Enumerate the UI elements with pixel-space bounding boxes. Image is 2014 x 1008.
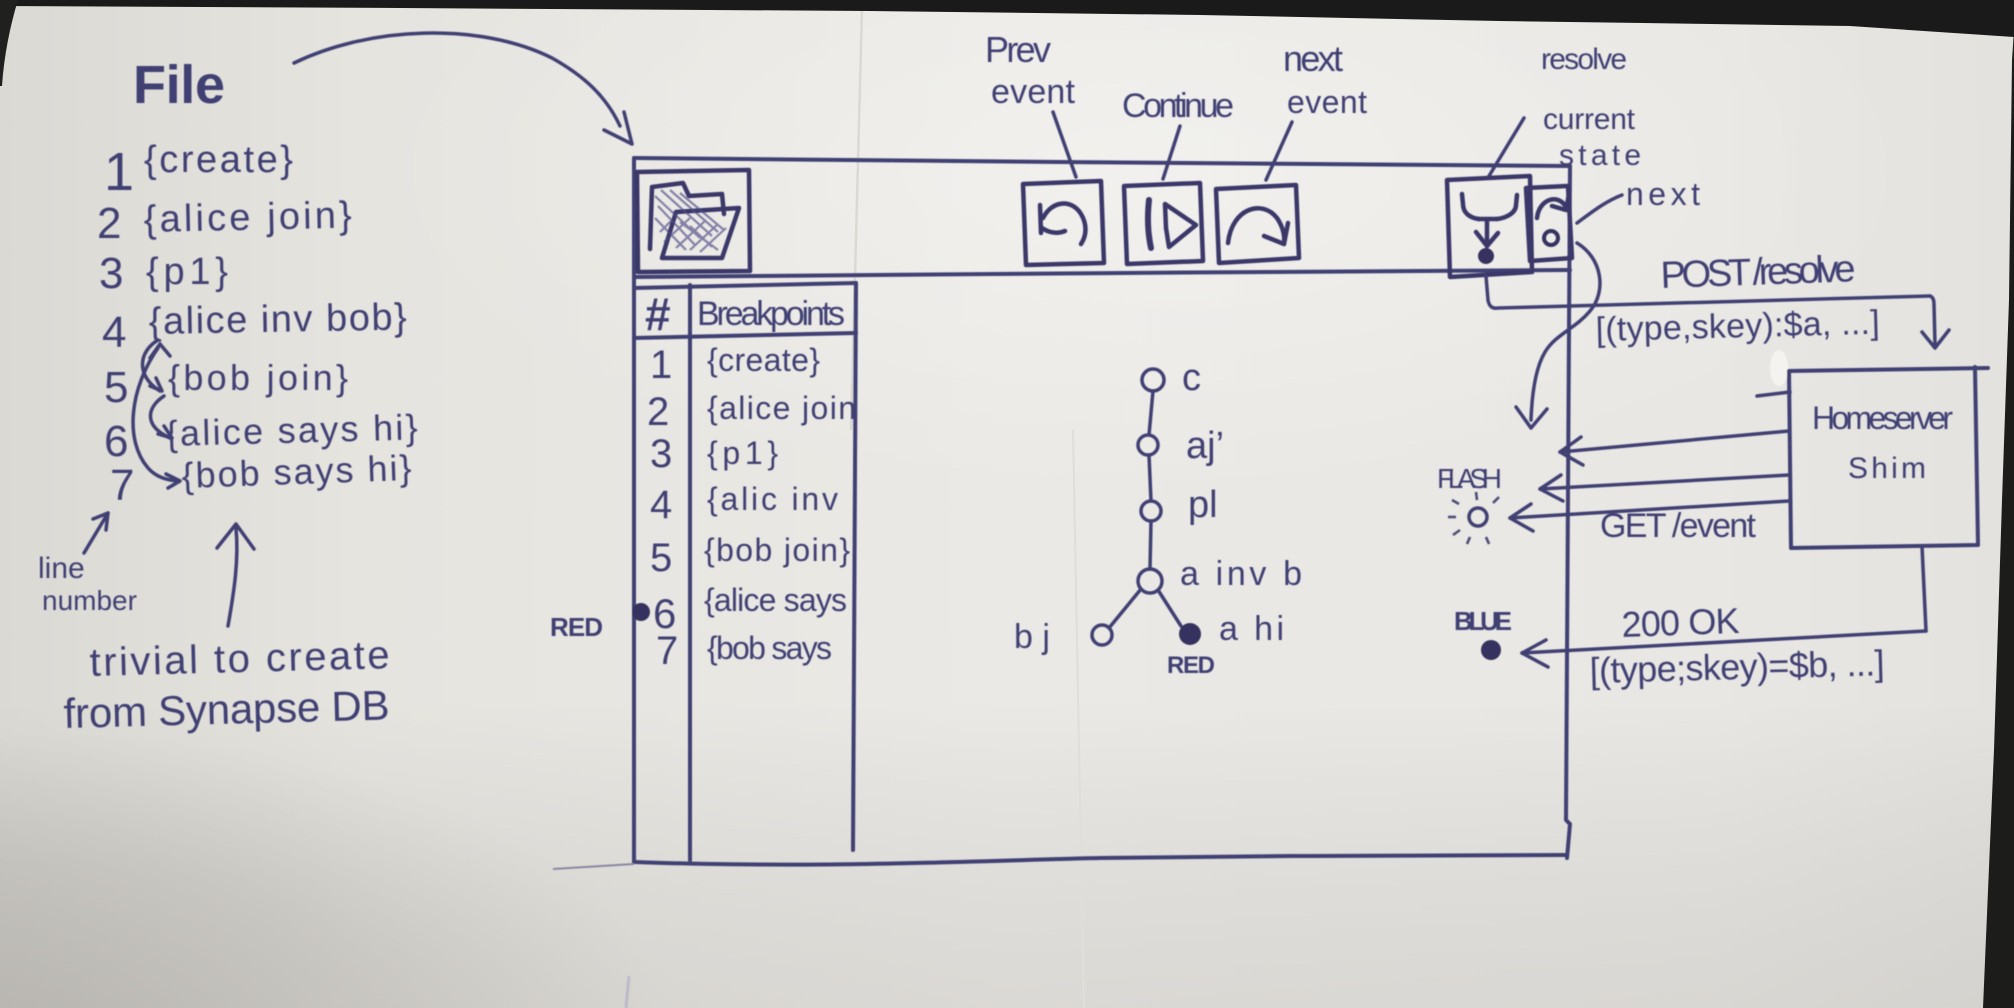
svg-text:[(type;skey)=$b, ...]: [(type;skey)=$b, ...] bbox=[1589, 642, 1885, 691]
svg-text:resolve: resolve bbox=[1541, 43, 1627, 76]
svg-text:Breakpoints: Breakpoints bbox=[697, 295, 845, 333]
svg-text:POST /resolve: POST /resolve bbox=[1660, 248, 1856, 297]
svg-text:6: 6 bbox=[104, 417, 128, 466]
svg-text:3: 3 bbox=[99, 249, 123, 298]
svg-text:current: current bbox=[1543, 103, 1636, 136]
svg-text:RED: RED bbox=[550, 612, 603, 642]
svg-text:2: 2 bbox=[647, 390, 669, 434]
svg-text:{alice join}: {alice join} bbox=[143, 195, 352, 241]
svg-text:{create}: {create} bbox=[707, 342, 820, 378]
svg-text:1: 1 bbox=[104, 142, 134, 202]
svg-text:next: next bbox=[1283, 38, 1343, 79]
svg-text:c: c bbox=[1182, 357, 1201, 399]
svg-text:event: event bbox=[991, 73, 1076, 111]
svg-text:5: 5 bbox=[104, 363, 128, 412]
svg-text:[(type,skey):$a, ...]: [(type,skey):$a, ...] bbox=[1595, 304, 1880, 349]
svg-text:pl: pl bbox=[1188, 484, 1218, 526]
svg-text:BLUE: BLUE bbox=[1454, 606, 1512, 636]
svg-text:4: 4 bbox=[650, 483, 672, 527]
svg-text:#: # bbox=[645, 288, 671, 340]
svg-text:aj’: aj’ bbox=[1186, 425, 1224, 467]
svg-text:{bob says: {bob says bbox=[707, 630, 832, 666]
svg-text:Shim: Shim bbox=[1848, 452, 1926, 485]
svg-text:line: line bbox=[38, 552, 85, 585]
svg-text:File: File bbox=[133, 55, 225, 115]
svg-text:3: 3 bbox=[650, 432, 672, 476]
svg-text:{alice says hi}: {alice says hi} bbox=[165, 406, 418, 454]
svg-text:from Synapse DB: from Synapse DB bbox=[63, 681, 390, 737]
svg-text:{bob join}: {bob join} bbox=[168, 357, 348, 398]
svg-text:1: 1 bbox=[650, 343, 672, 387]
svg-text:trivial to create: trivial to create bbox=[89, 633, 390, 685]
svg-text:7: 7 bbox=[110, 461, 134, 510]
svg-text:Prev: Prev bbox=[985, 29, 1051, 70]
svg-text:7: 7 bbox=[656, 629, 678, 673]
svg-text:Homeserver: Homeserver bbox=[1812, 400, 1953, 436]
svg-text:RED: RED bbox=[1167, 652, 1215, 679]
svg-text:{alice inv bob}: {alice inv bob} bbox=[148, 297, 407, 343]
svg-text:4: 4 bbox=[102, 308, 126, 357]
svg-text:GET /event: GET /event bbox=[1600, 507, 1757, 545]
svg-text:2: 2 bbox=[97, 199, 121, 248]
svg-text:number: number bbox=[42, 585, 137, 616]
svg-text:200 OK: 200 OK bbox=[1621, 600, 1740, 645]
svg-text:event: event bbox=[1287, 84, 1367, 120]
svg-text:5: 5 bbox=[650, 536, 672, 580]
svg-text:{alic inv: {alic inv bbox=[707, 481, 838, 517]
svg-text:{alice join: {alice join bbox=[707, 390, 856, 426]
svg-text:{bob join}: {bob join} bbox=[704, 532, 850, 568]
svg-text:Continue: Continue bbox=[1122, 87, 1234, 125]
svg-text:a inv b: a inv b bbox=[1180, 555, 1302, 593]
svg-text:b j: b j bbox=[1014, 618, 1050, 656]
svg-text:{alice says: {alice says bbox=[704, 582, 847, 618]
svg-text:FLASH: FLASH bbox=[1437, 463, 1502, 494]
